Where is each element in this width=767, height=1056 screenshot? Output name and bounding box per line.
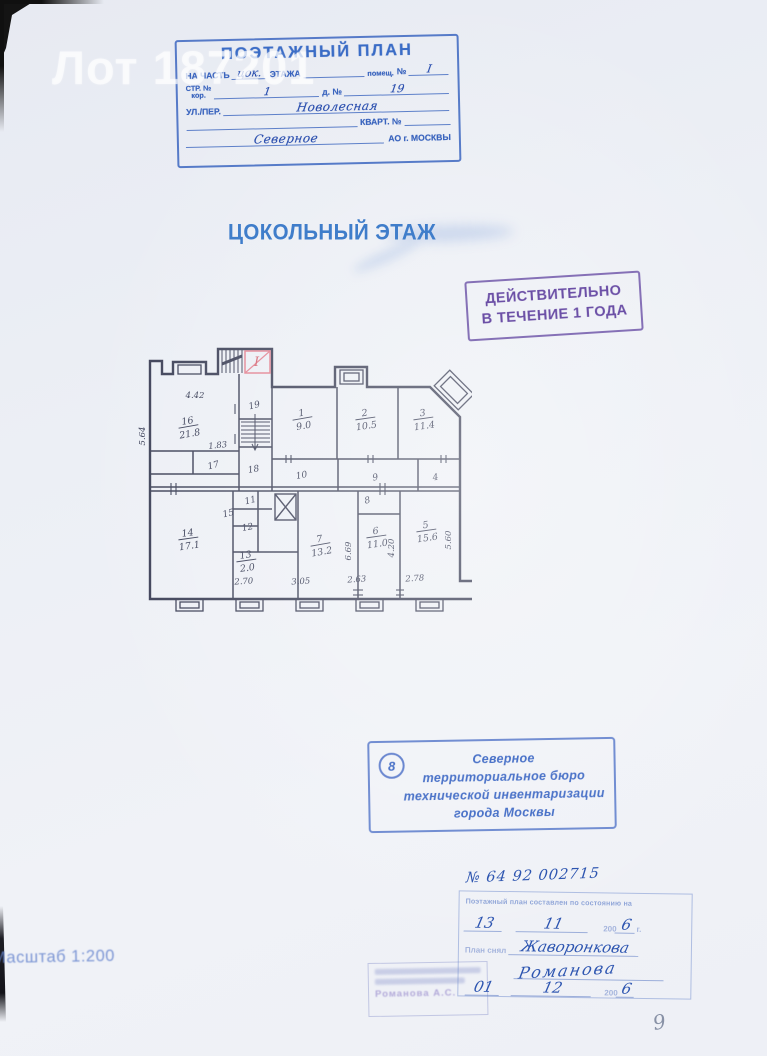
date-stamp-header: Поэтажный план составлен по состоянию на bbox=[466, 896, 680, 908]
floor-title: ЦОКОЛЬНЫЙ ЭТАЖ bbox=[228, 220, 436, 246]
svg-text:2.78: 2.78 bbox=[404, 573, 425, 584]
svg-text:2.70: 2.70 bbox=[233, 576, 254, 587]
scale-label: Масштаб 1:200 bbox=[0, 947, 115, 968]
svg-text:12: 12 bbox=[241, 522, 254, 534]
lot-watermark: Лот 187201 bbox=[52, 40, 315, 95]
svg-text:3.05: 3.05 bbox=[291, 576, 311, 587]
scan-top-edge-artifact bbox=[0, 0, 104, 4]
date-row: 13 11 200 6 г. bbox=[465, 915, 685, 934]
svg-text:1.83: 1.83 bbox=[208, 440, 228, 452]
hand-house-number: 19 bbox=[344, 82, 451, 96]
stamp-row-street: УЛ./ПЕР. Новолесная bbox=[186, 98, 450, 117]
svg-text:17: 17 bbox=[207, 460, 221, 473]
svg-text:2.0: 2.0 bbox=[238, 562, 255, 575]
hand-year-2: 6 bbox=[616, 982, 638, 998]
hand-year: 6 bbox=[615, 918, 639, 934]
blank-line bbox=[405, 124, 451, 126]
svg-text:11.4: 11.4 bbox=[413, 419, 435, 433]
label-house-number: д. № bbox=[322, 86, 342, 96]
svg-text:4: 4 bbox=[431, 473, 440, 484]
svg-text:8: 8 bbox=[364, 495, 372, 506]
svg-text:5.60: 5.60 bbox=[444, 530, 454, 550]
svg-text:10.5: 10.5 bbox=[355, 419, 377, 433]
bureau-line-4: города Москвы bbox=[400, 802, 608, 824]
blank-line bbox=[187, 126, 357, 131]
ventilation-shaft bbox=[275, 494, 296, 520]
scanned-floor-plan-page: Лот 187201 ПОЭТАЖНЫЙ ПЛАН НА ЧАСТЬ цок. … bbox=[0, 0, 767, 1056]
label-street: УЛ./ПЕР. bbox=[186, 106, 221, 117]
hand-district: Северное bbox=[186, 130, 386, 148]
hand-surveyor: Жаворонкова bbox=[509, 939, 643, 957]
label-pomesh: помещ. bbox=[367, 69, 394, 77]
svg-text:15.6: 15.6 bbox=[416, 531, 438, 545]
entrance-mark: I bbox=[245, 351, 270, 373]
hand-day: 13 bbox=[463, 915, 505, 931]
svg-text:10: 10 bbox=[295, 470, 308, 482]
label-plan-snyal: План снял bbox=[465, 945, 506, 955]
hand-month-2: 12 bbox=[511, 980, 595, 997]
interior-walls bbox=[150, 374, 460, 599]
year-suffix: г. bbox=[637, 925, 642, 934]
svg-text:17.1: 17.1 bbox=[178, 539, 200, 553]
floor-plan-svg: I 1621.817191819.0210.5311.410941417.115… bbox=[138, 344, 472, 622]
svg-text:13.2: 13.2 bbox=[310, 545, 333, 560]
stamp-row-district: Северное АО г. МОСКВЫ bbox=[187, 129, 451, 148]
label-number-sign: № bbox=[397, 66, 407, 76]
svg-text:5: 5 bbox=[422, 520, 430, 532]
windows bbox=[176, 365, 472, 611]
svg-text:9: 9 bbox=[372, 472, 380, 483]
svg-text:3: 3 bbox=[419, 408, 427, 420]
date-stamp: Поэтажный план составлен по состоянию на… bbox=[457, 890, 692, 999]
door-ticks bbox=[171, 404, 446, 595]
label-ao-moscow: АО г. МОСКВЫ bbox=[388, 132, 451, 143]
validity-stamp: ДЕЙСТВИТЕЛЬНО В ТЕЧЕНИЕ 1 ГОДА bbox=[464, 271, 643, 342]
scan-corner-artifact bbox=[0, 0, 42, 66]
svg-text:11.0: 11.0 bbox=[366, 537, 388, 551]
plan-room-labels: 1621.817191819.0210.5311.410941417.11511… bbox=[138, 391, 454, 588]
floor-plan-drawing: I 1621.817191819.0210.5311.410941417.115… bbox=[138, 344, 472, 622]
svg-text:9.0: 9.0 bbox=[295, 420, 312, 433]
svg-text:6.69: 6.69 bbox=[344, 541, 354, 561]
inventory-number: № 64 92 002715 bbox=[465, 866, 600, 887]
bureau-stamp: 8 Северное территориальное бюро техничес… bbox=[367, 737, 617, 833]
svg-text:11: 11 bbox=[244, 495, 258, 507]
entrance-mark-numeral: I bbox=[253, 355, 260, 370]
hand-street-name: Новолесная bbox=[223, 98, 451, 116]
illegible-stamp-text bbox=[375, 977, 465, 985]
hand-month: 11 bbox=[515, 916, 591, 933]
svg-text:4.42: 4.42 bbox=[185, 391, 205, 401]
second-date-row: 01 12 200 6 bbox=[466, 979, 684, 998]
hand-premise-number: I bbox=[408, 63, 450, 76]
hand-day-2: 01 bbox=[465, 980, 503, 996]
stamp-row-apartment: КВАРТ. № bbox=[186, 115, 450, 131]
svg-text:19: 19 bbox=[248, 400, 262, 413]
svg-text:6: 6 bbox=[372, 526, 380, 538]
scan-left-edge-artifact bbox=[0, 0, 4, 132]
page-number: 9 bbox=[651, 1009, 668, 1035]
svg-text:21.8: 21.8 bbox=[177, 427, 201, 442]
label-kvart: КВАРТ. № bbox=[360, 116, 402, 127]
svg-text:18: 18 bbox=[247, 464, 260, 476]
svg-text:5.64: 5.64 bbox=[138, 427, 148, 446]
surveyor-row: План снял Жаворонкова bbox=[465, 938, 685, 957]
svg-text:4.20: 4.20 bbox=[387, 538, 397, 559]
stairs bbox=[222, 350, 270, 450]
svg-text:2: 2 bbox=[360, 408, 369, 420]
svg-text:2.63: 2.63 bbox=[346, 574, 367, 585]
